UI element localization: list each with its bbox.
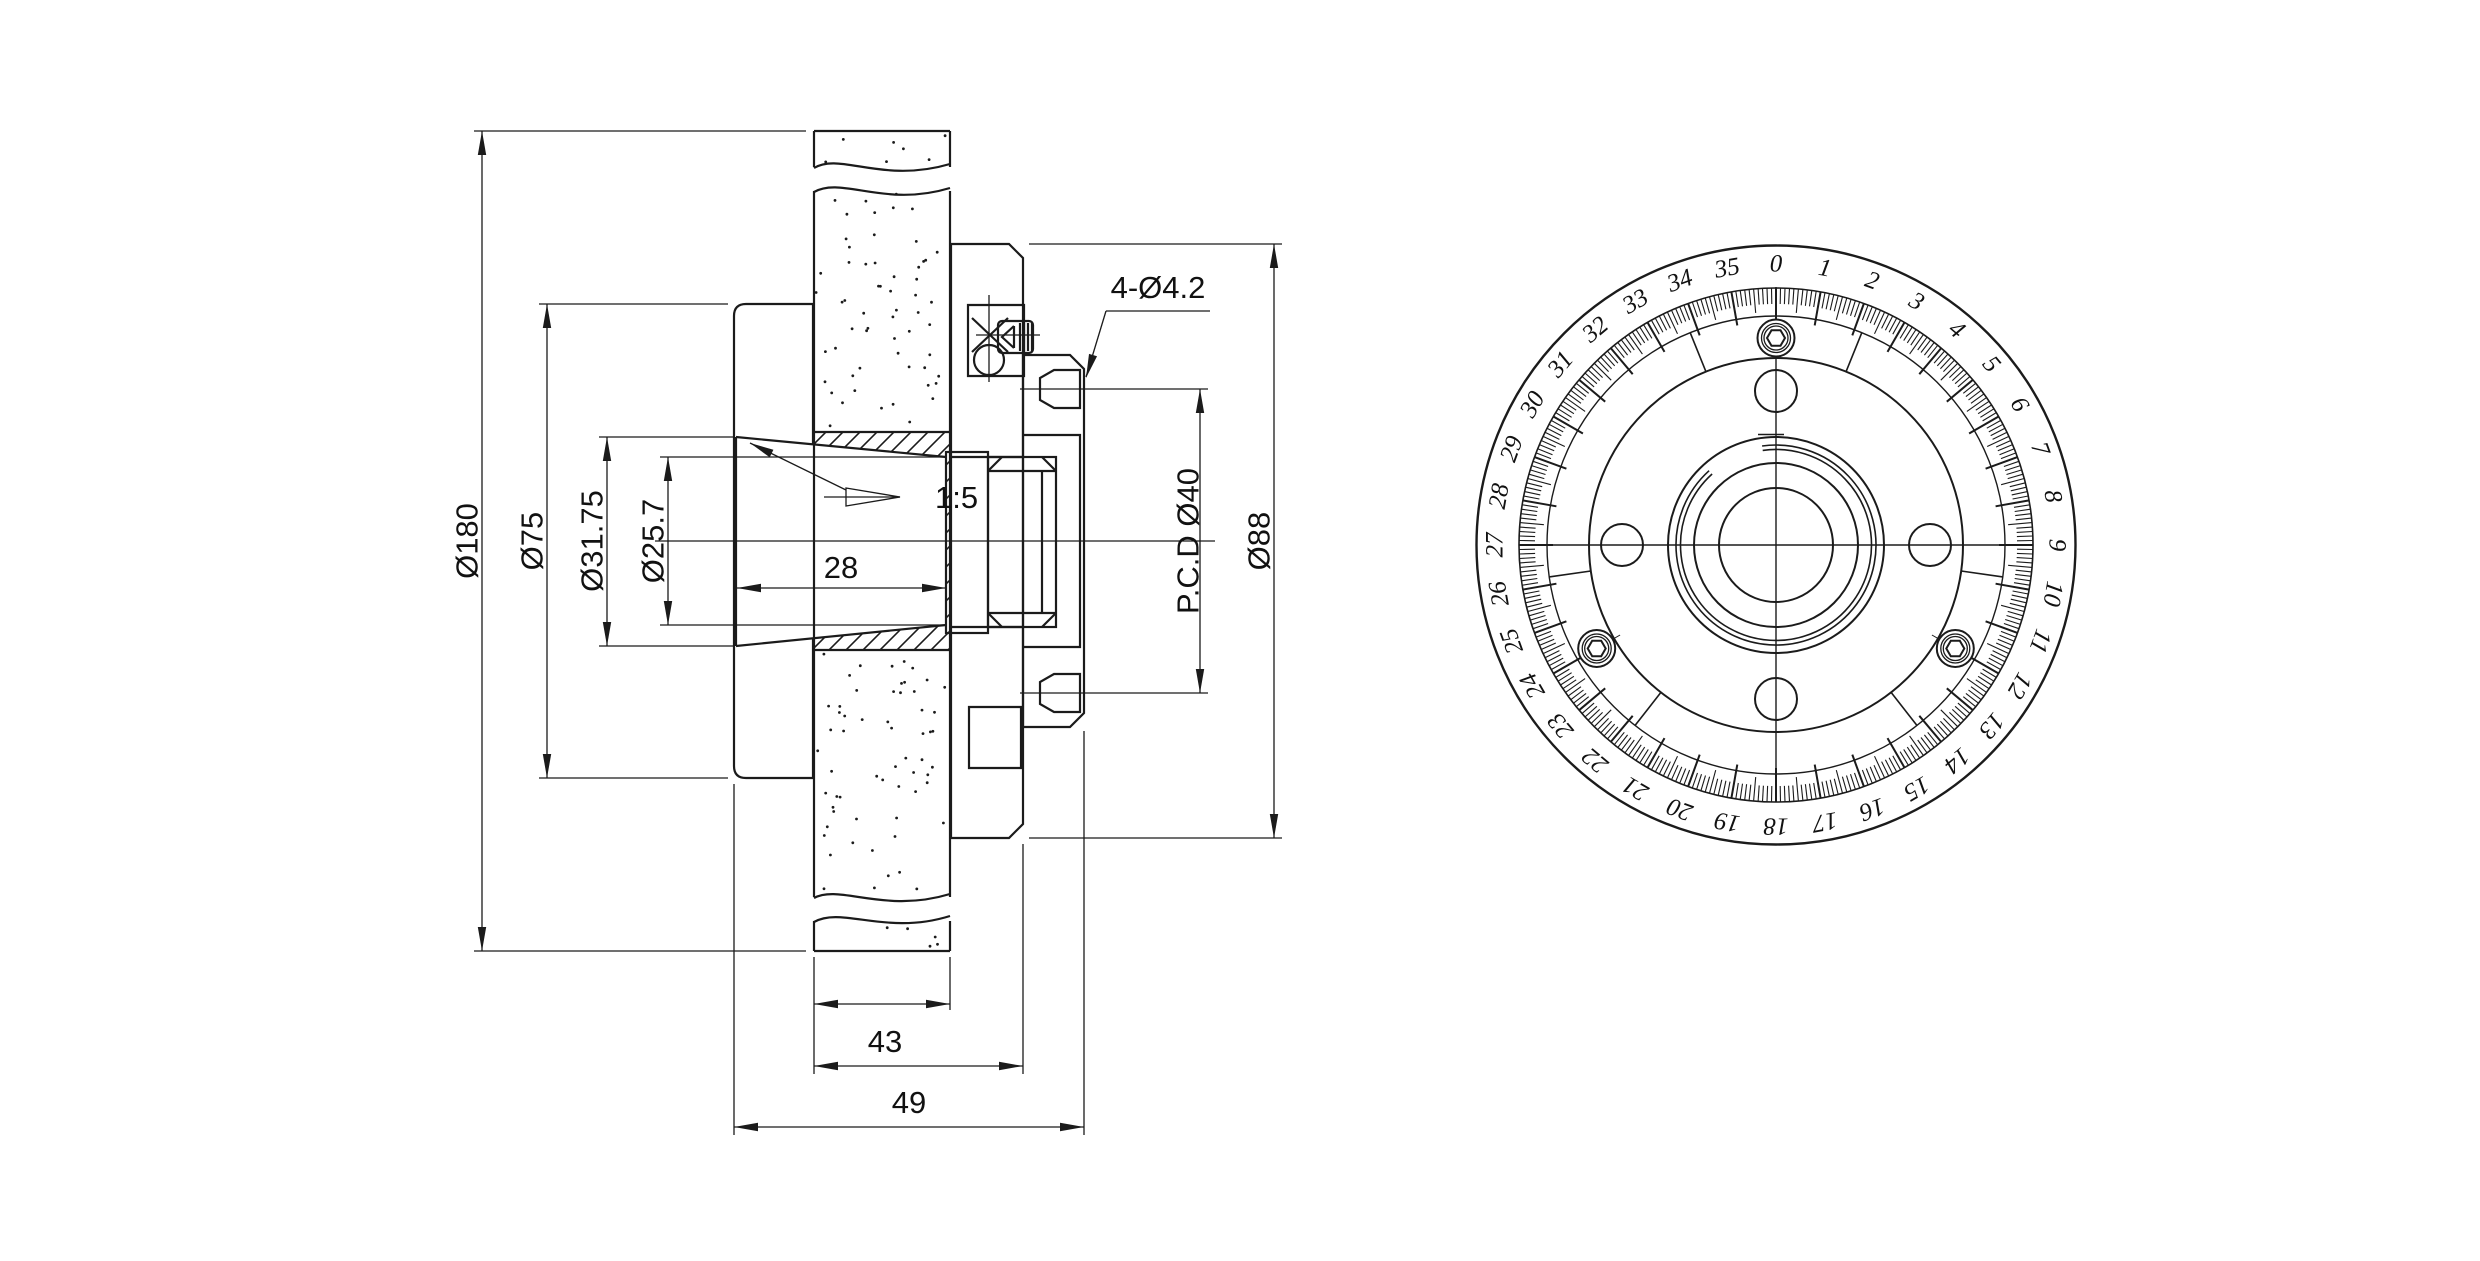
dial-number: 6 (2005, 392, 2035, 417)
drawing-sheet: Ø180 Ø75 Ø31.75 Ø25.7 28 1:5 4-Ø4.2 P.C.… (0, 0, 2480, 1261)
dial-number: 25 (1495, 625, 1529, 658)
dim-wheel-diameter: Ø180 (450, 503, 485, 579)
hex-socket-screw (1937, 630, 1974, 667)
break-line (814, 916, 950, 923)
dim-flange-diameter: Ø75 (515, 512, 550, 571)
dial-number: 3 (1903, 286, 1928, 316)
dial-number: 19 (1712, 806, 1742, 837)
dial-number: 35 (1712, 253, 1742, 284)
plate-spoke (1961, 571, 2003, 577)
dim-hub-length: 43 (868, 1024, 902, 1059)
break-line (814, 163, 950, 170)
dial-number: 17 (1809, 806, 1840, 837)
dim-pitch-circle-diameter: P.C.D Ø40 (1171, 468, 1206, 614)
dim-body-diameter: Ø88 (1242, 512, 1277, 571)
dial-number: 27 (1482, 531, 1509, 558)
plate-spoke (1635, 692, 1661, 725)
hex-socket-screw (1578, 630, 1615, 667)
ball-detent (972, 295, 1040, 382)
dial-number: 24 (1515, 668, 1551, 703)
dim-taper-small-diameter: Ø25.7 (636, 499, 671, 583)
dial-number: 16 (1855, 792, 1888, 826)
dial-number: 20 (1663, 792, 1696, 826)
dial-number: 26 (1484, 579, 1515, 609)
dial-number: 9 (2044, 539, 2071, 552)
engineering-drawing: Ø180 Ø75 Ø31.75 Ø25.7 28 1:5 4-Ø4.2 P.C.… (0, 0, 2480, 1261)
dial-number: 2 (1862, 266, 1883, 296)
dial-number: 12 (2001, 668, 2037, 703)
plate-spoke (1690, 333, 1706, 372)
dim-overall-length: 49 (892, 1085, 926, 1120)
dial-number: 4 (1943, 315, 1970, 344)
dim-taper-length: 28 (824, 550, 858, 585)
hex-socket-screw (1758, 320, 1795, 357)
break-line (814, 894, 950, 901)
dial-number: 5 (1977, 351, 2006, 378)
dial-number: 11 (2023, 626, 2056, 657)
dim-taper-large-diameter: Ø31.75 (575, 490, 610, 592)
dial-number: 8 (2038, 488, 2067, 505)
dial-view: 0123456789101112131415161718192021222324… (1477, 246, 2076, 845)
dim-mount-holes: 4-Ø4.2 (1111, 270, 1206, 305)
plate-spoke (1891, 692, 1917, 725)
break-line (814, 187, 950, 194)
dial-number: 28 (1484, 481, 1515, 511)
dial-number: 0 (1770, 251, 1783, 278)
dial-number: 7 (2025, 438, 2055, 460)
dial-number: 34 (1663, 264, 1697, 298)
plate-spoke (1549, 571, 1591, 577)
dim-taper-ratio: 1:5 (935, 480, 978, 515)
dial-number: 29 (1495, 432, 1529, 465)
plate-spoke (1846, 333, 1862, 372)
dial-number: 18 (1763, 813, 1789, 840)
dial-number: 1 (1816, 254, 1833, 283)
section-view: Ø180 Ø75 Ø31.75 Ø25.7 28 1:5 4-Ø4.2 P.C.… (450, 131, 1283, 1135)
dial-number: 15 (1899, 770, 1934, 806)
dial-number: 21 (1618, 770, 1653, 806)
dial-number: 10 (2037, 579, 2068, 609)
